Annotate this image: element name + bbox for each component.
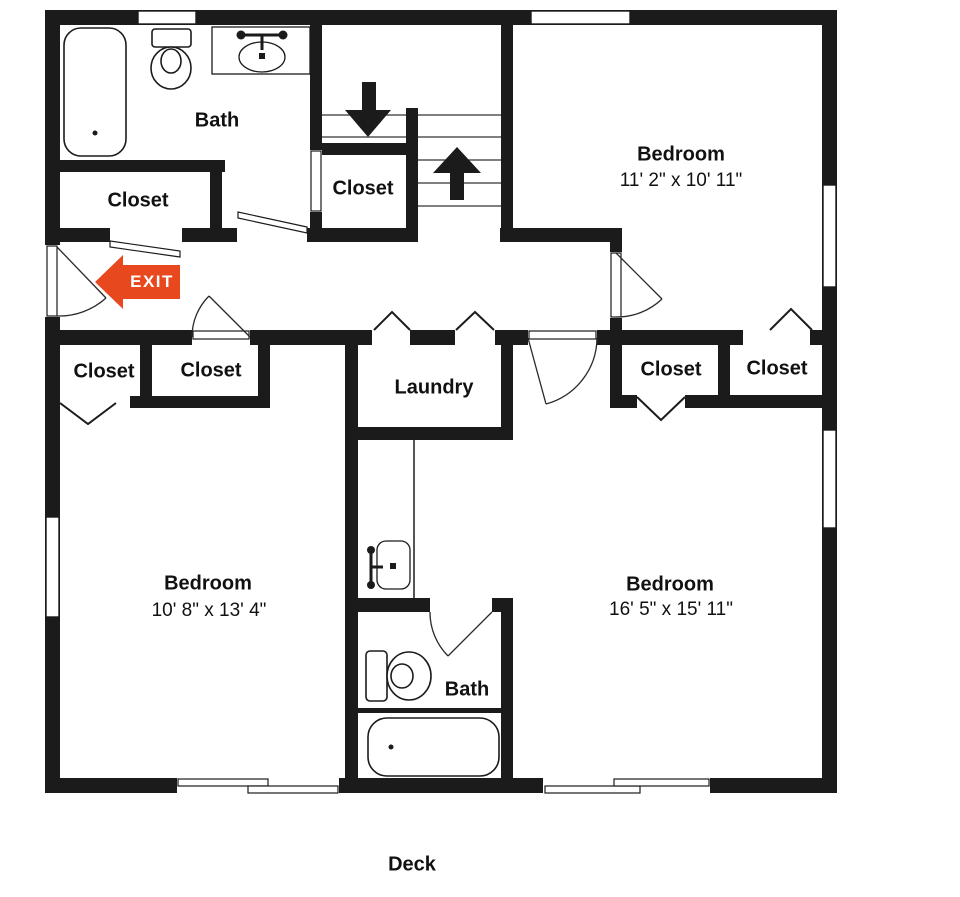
door-leaf	[193, 331, 249, 339]
room-label-closet-stair: Closet	[332, 178, 393, 201]
wall	[310, 143, 418, 155]
wall	[501, 330, 513, 440]
room-label-bedroom-bottom-left: Bedroom	[164, 573, 252, 596]
wall	[718, 345, 730, 395]
door-leaf	[611, 253, 621, 317]
bifold-door	[374, 312, 410, 330]
wall	[501, 598, 513, 778]
wall	[45, 330, 192, 345]
bathtub-lower	[368, 718, 499, 776]
wall	[345, 427, 513, 440]
door-swing-arc	[546, 338, 597, 404]
wall	[822, 10, 837, 793]
wall	[210, 160, 222, 230]
floor-plan-drawing	[0, 0, 960, 897]
window	[46, 517, 59, 617]
wall	[597, 330, 610, 345]
sliding-door-panel	[248, 786, 338, 793]
tub-partition-wall	[358, 708, 501, 713]
window	[823, 430, 836, 528]
door-swing-arc	[430, 612, 448, 656]
sink-upper	[212, 27, 310, 74]
wall	[685, 395, 822, 408]
wall	[140, 345, 152, 396]
door-swing	[528, 338, 546, 404]
wall	[130, 396, 270, 408]
room-dims-bedroom-bottom-left: 10' 8" x 13' 4"	[152, 600, 267, 622]
room-label-closet-bath: Closet	[107, 190, 168, 213]
toilet-upper	[151, 29, 191, 89]
room-label-closet-hall-left: Closet	[73, 361, 134, 384]
wall	[45, 160, 225, 172]
door-swing	[57, 247, 106, 298]
wall	[45, 10, 60, 793]
wall	[500, 228, 622, 242]
sliding-door-panel	[614, 779, 709, 786]
wall	[258, 330, 270, 408]
bifold-door	[770, 309, 812, 330]
room-label-bedroom-top-right: Bedroom	[637, 144, 725, 167]
windows	[46, 11, 836, 617]
door-swing-arc	[57, 298, 106, 316]
wall	[45, 228, 110, 242]
wall	[358, 598, 430, 612]
room-label-bath-upper: Bath	[195, 110, 239, 133]
sliding-door-panel	[545, 786, 640, 793]
door-leaf	[47, 246, 57, 316]
room-dims-bedroom-bottom-right: 16' 5" x 15' 11"	[609, 599, 733, 621]
room-label-bedroom-bottom-right: Bedroom	[626, 574, 714, 597]
walls	[45, 10, 837, 793]
wall	[345, 330, 358, 778]
door-swing	[616, 253, 662, 299]
window	[823, 185, 836, 287]
wall	[610, 395, 637, 408]
bifold-door	[637, 397, 685, 420]
door-leaf	[311, 151, 321, 211]
floor-plan: Bath Closet Closet Bedroom 11' 2" x 10' …	[0, 0, 960, 897]
wall	[182, 228, 237, 242]
stairs-down-arrow	[345, 82, 391, 137]
wall	[45, 778, 837, 793]
wall	[810, 330, 822, 345]
door-leaf	[238, 212, 307, 233]
room-label-closet-br-a: Closet	[640, 359, 701, 382]
sliding-door-panel	[178, 779, 268, 786]
wall	[410, 330, 455, 345]
bathtub-upper	[64, 28, 126, 156]
door-leaf	[529, 331, 596, 339]
door-leaf	[110, 241, 180, 257]
bifold-door	[456, 312, 494, 330]
stairs-up-arrow	[433, 147, 481, 200]
door-swing-arc	[616, 299, 662, 317]
room-label-deck: Deck	[388, 854, 436, 877]
room-label-laundry: Laundry	[395, 377, 474, 400]
wall	[406, 108, 418, 230]
window	[138, 11, 196, 24]
room-label-closet-br-b: Closet	[746, 358, 807, 381]
window	[531, 11, 630, 24]
toilet-lower	[366, 651, 431, 701]
exit-sign-label: EXIT	[130, 272, 174, 292]
room-dims-bedroom-top-right: 11' 2" x 10' 11"	[620, 170, 743, 192]
wall	[622, 330, 743, 345]
fixtures	[64, 27, 499, 776]
door-swings	[57, 247, 662, 656]
wall	[307, 228, 418, 242]
bifold-door	[60, 403, 116, 424]
sink-lower	[367, 541, 410, 589]
door-swing	[448, 612, 492, 656]
room-label-closet-hall-right: Closet	[180, 360, 241, 383]
wall	[501, 25, 513, 230]
room-label-bath-lower: Bath	[445, 679, 489, 702]
